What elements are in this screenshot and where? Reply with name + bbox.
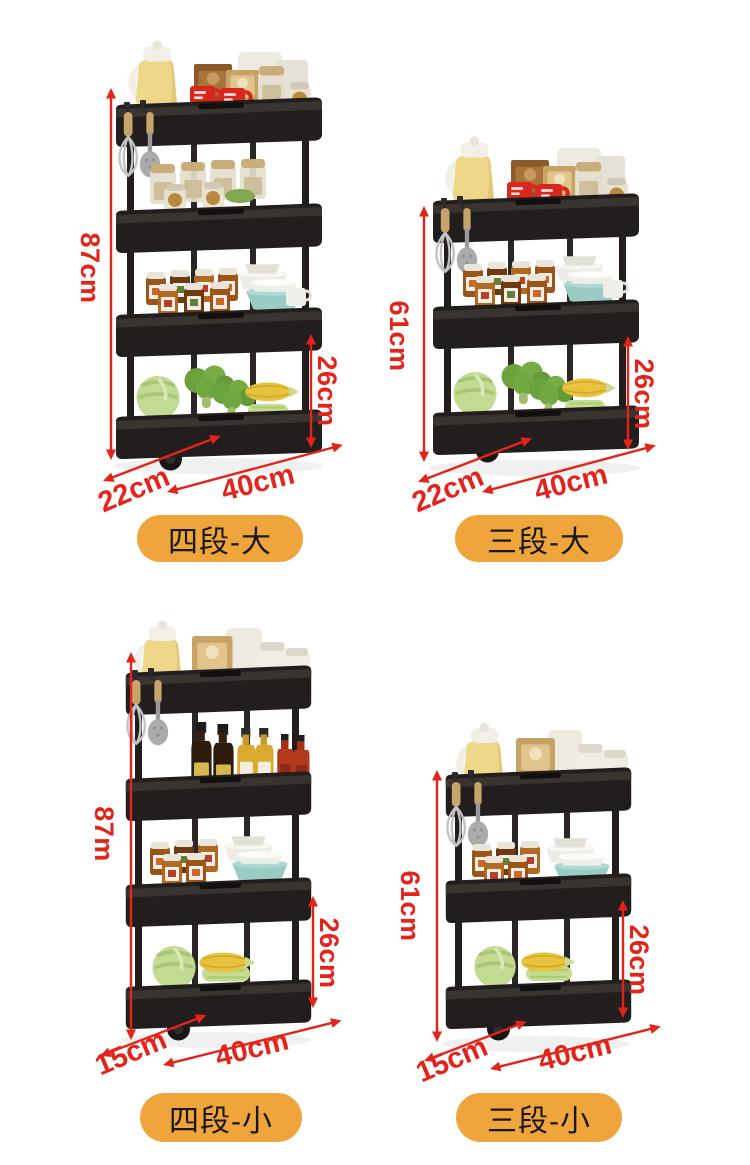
tier-2-basket: [446, 873, 631, 923]
variant-badge-three-tier-small: 三段-小: [456, 1093, 622, 1142]
product-figure-three-tier-large: 61cm 26cm 22cm 40cm 三段-大: [375, 0, 750, 580]
height-label: 87cm: [75, 223, 105, 313]
tier-2-items: [150, 159, 266, 210]
tier-3-basket: [446, 979, 631, 1029]
product-figure-three-tier-small: 61cm 26cm 15cm 40cm 三段-小: [375, 580, 750, 1165]
product-figure-four-tier-small: 87m 26cm 15cm 40cm 四段-小: [0, 580, 375, 1165]
variant-badge-four-tier-large: 四段-大: [137, 515, 303, 562]
tier-1-basket: [126, 665, 311, 715]
height-arrow: [430, 770, 444, 1042]
tier-2-basket: [433, 299, 639, 349]
tier-2-basket: [116, 203, 322, 253]
tier-gap-label: 26cm: [312, 346, 342, 436]
cabbage-graphic: [453, 372, 496, 415]
tier-2-basket: [126, 771, 311, 821]
tier-3-basket: [126, 877, 311, 927]
tier-gap-label: 26cm: [314, 908, 344, 998]
kettle-graphic: [449, 137, 494, 207]
product-dimension-diagram: 87cm 26cm 22cm 40cm 四段-大: [0, 0, 750, 1165]
kettle-graphic: [132, 41, 177, 111]
corn-graphic: [562, 379, 616, 398]
tier-gap-label: 26cm: [629, 349, 659, 439]
height-arrow: [124, 652, 138, 1040]
cabbage-graphic: [136, 376, 179, 419]
variant-badge-four-tier-small: 四段-小: [140, 1093, 302, 1142]
corn-graphic: [245, 383, 299, 402]
tier-3-basket: [116, 307, 322, 357]
height-arrow: [417, 206, 431, 462]
height-arrow: [104, 88, 118, 460]
tier-1-basket: [446, 767, 631, 817]
product-figure-four-tier-large: 87cm 26cm 22cm 40cm 四段-大: [0, 0, 375, 580]
height-label: 61cm: [384, 291, 414, 381]
cabbage-graphic: [152, 946, 195, 989]
tier-4-basket: [126, 979, 311, 1029]
variant-badge-three-tier-large: 三段-大: [455, 515, 623, 562]
cabbage-graphic: [474, 946, 515, 987]
tier-3-items: [474, 946, 575, 987]
height-label: 87m: [89, 789, 119, 879]
tier-gap-label: 26cm: [624, 915, 654, 1005]
tier-3-basket: [433, 405, 639, 455]
height-label: 61cm: [395, 861, 425, 951]
